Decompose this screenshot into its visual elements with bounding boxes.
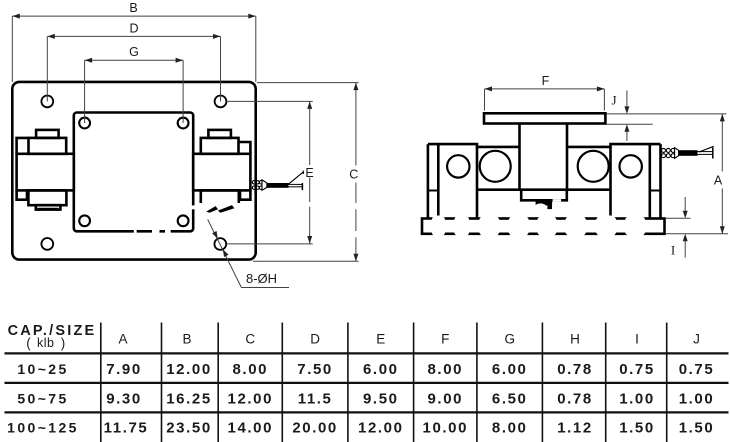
- svg-text:G: G: [129, 45, 139, 59]
- svg-text:H: H: [570, 332, 580, 347]
- svg-text:(: (: [26, 336, 31, 351]
- svg-text:A: A: [714, 174, 723, 188]
- svg-text:F: F: [441, 332, 449, 347]
- svg-text:D: D: [129, 21, 138, 35]
- svg-text:6.00: 6.00: [363, 361, 399, 378]
- svg-text:8.00: 8.00: [492, 420, 528, 437]
- svg-text:I: I: [635, 332, 639, 347]
- svg-text:20.00: 20.00: [292, 420, 338, 437]
- svg-text:): ): [61, 336, 66, 351]
- svg-text:11.75: 11.75: [104, 420, 149, 437]
- svg-text:1.00: 1.00: [619, 390, 655, 407]
- svg-text:12.00: 12.00: [228, 390, 274, 407]
- svg-text:0.78: 0.78: [557, 361, 593, 378]
- svg-text:8.00: 8.00: [232, 361, 268, 378]
- svg-text:7.50: 7.50: [297, 361, 333, 378]
- svg-text:E: E: [305, 166, 313, 180]
- svg-text:C: C: [245, 332, 255, 347]
- svg-text:50~75: 50~75: [17, 390, 68, 406]
- svg-text:1.50: 1.50: [679, 420, 715, 437]
- svg-text:A: A: [118, 332, 127, 347]
- svg-text:9.50: 9.50: [363, 390, 399, 407]
- svg-text:11.5: 11.5: [298, 390, 333, 407]
- svg-text:9.30: 9.30: [106, 390, 142, 407]
- svg-text:10.00: 10.00: [423, 420, 469, 437]
- svg-text:12.00: 12.00: [358, 420, 404, 437]
- svg-text:J: J: [611, 93, 616, 108]
- svg-text:0.75: 0.75: [679, 361, 715, 378]
- svg-text:E: E: [376, 332, 385, 347]
- svg-text:0.78: 0.78: [557, 390, 593, 407]
- svg-text:G: G: [504, 332, 515, 347]
- svg-text:6.50: 6.50: [492, 390, 528, 407]
- svg-text:9.00: 9.00: [427, 390, 463, 407]
- svg-text:D: D: [310, 332, 320, 347]
- svg-text:C: C: [349, 168, 358, 182]
- svg-text:I: I: [671, 243, 675, 258]
- svg-text:8.00: 8.00: [427, 361, 463, 378]
- svg-text:6.00: 6.00: [492, 361, 528, 378]
- svg-text:100~125: 100~125: [7, 420, 79, 436]
- svg-text:14.00: 14.00: [228, 420, 274, 437]
- svg-text:10~25: 10~25: [17, 361, 68, 377]
- svg-text:7.90: 7.90: [106, 361, 142, 378]
- svg-text:1.50: 1.50: [619, 420, 655, 437]
- svg-text:23.50: 23.50: [166, 420, 212, 437]
- svg-text:klb: klb: [37, 336, 54, 350]
- svg-text:B: B: [182, 332, 191, 347]
- svg-text:0.75: 0.75: [619, 361, 655, 378]
- svg-text:16.25: 16.25: [166, 390, 212, 407]
- svg-text:F: F: [542, 74, 550, 88]
- svg-text:J: J: [693, 332, 700, 347]
- svg-text:1.00: 1.00: [679, 390, 715, 407]
- svg-text:1.12: 1.12: [557, 420, 593, 437]
- svg-text:12.00: 12.00: [166, 361, 212, 378]
- svg-text:B: B: [129, 1, 137, 15]
- svg-text:8-ØH: 8-ØH: [246, 271, 277, 286]
